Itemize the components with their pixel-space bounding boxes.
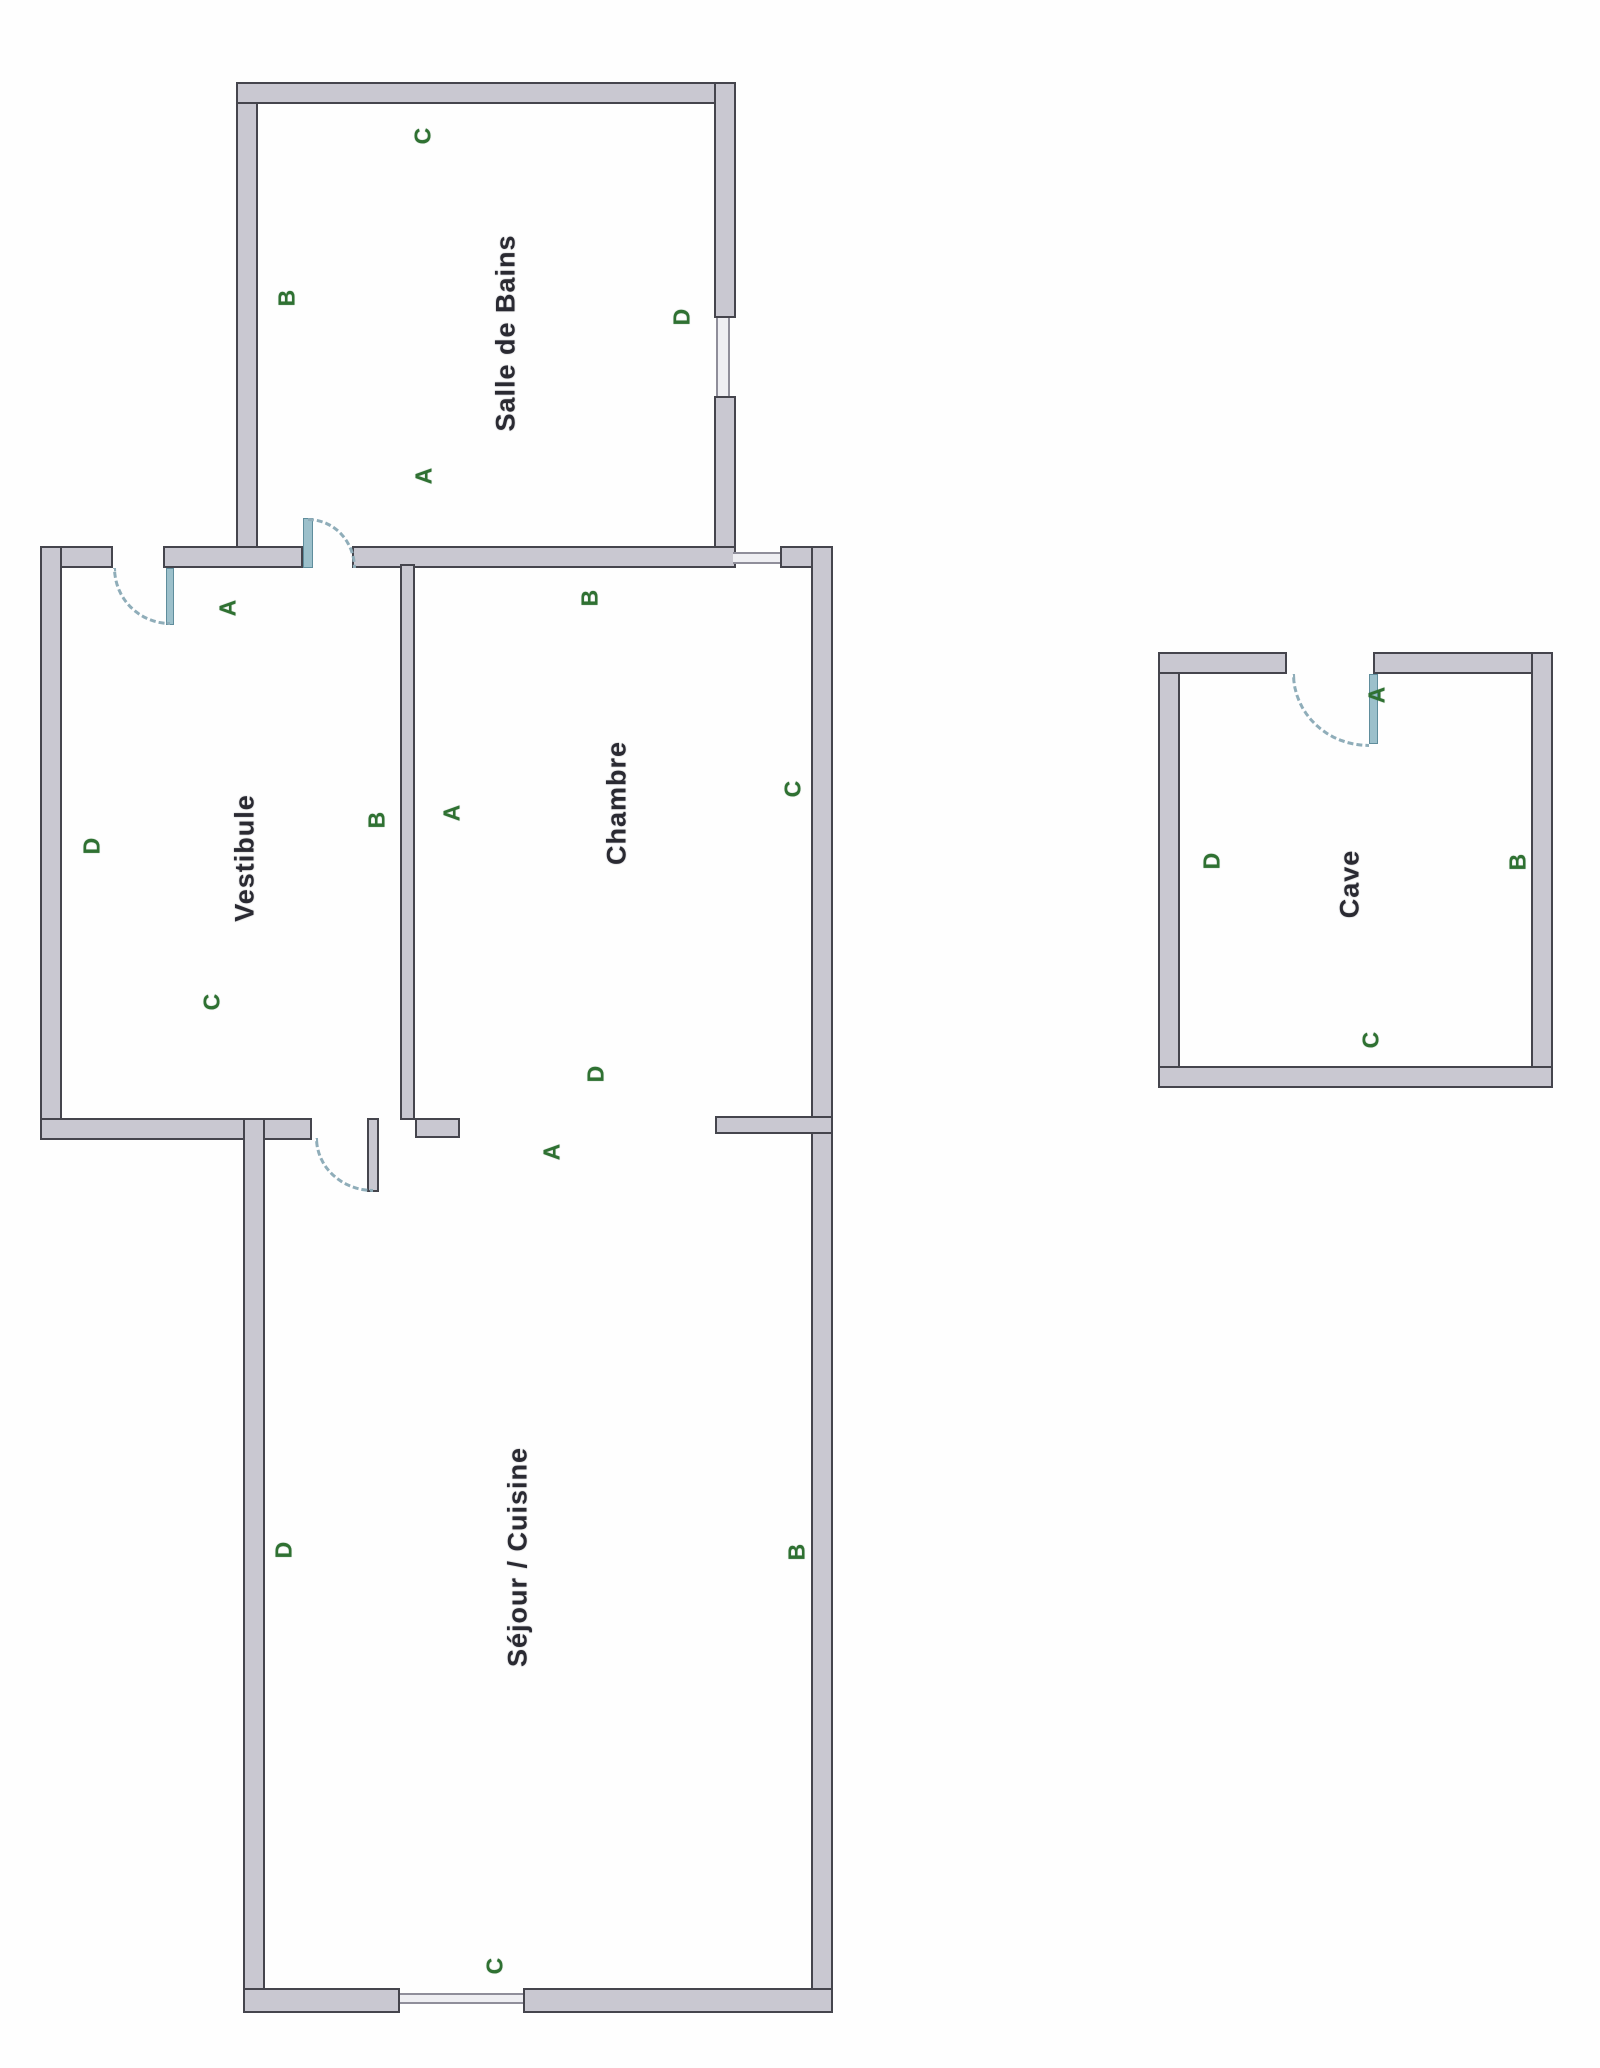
- chambre-wall-label-d: D: [583, 1066, 610, 1083]
- cave-wall-label-a: A: [1364, 687, 1391, 704]
- cave-door-leaf: [1369, 674, 1378, 744]
- sejour-left-wall: [243, 1118, 265, 2013]
- cave-door-swing-arc: [1292, 674, 1369, 747]
- room-name-sejour-cuisine: Séjour / Cuisine: [503, 1447, 534, 1667]
- salle-de-bains-wall-label-d: D: [669, 309, 696, 326]
- cave-right-wall: [1531, 652, 1553, 1088]
- room-name-chambre: Chambre: [602, 741, 633, 865]
- sejour-wall-label-d: D: [271, 1542, 298, 1559]
- sejour-wall-label-a: A: [539, 1144, 566, 1161]
- vestibule-wall-label-a: A: [215, 600, 242, 617]
- chambre-sejour-right-wall: [811, 546, 833, 2013]
- vestibule-wall-label-b: B: [364, 812, 391, 829]
- salle-de-bains-top-wall: [236, 82, 736, 104]
- salle-de-bains-wall-label-c: C: [410, 128, 437, 145]
- sejour-top-wall-stub: [415, 1118, 460, 1138]
- cave-wall-label-b: B: [1505, 854, 1532, 871]
- room-name-cave: Cave: [1335, 850, 1366, 919]
- chambre-wall-label-c: C: [780, 781, 807, 798]
- chambre-top-window: [733, 552, 780, 564]
- vestibule-chambre-divider-wall: [400, 564, 415, 1120]
- sejour-bottom-window: [400, 1993, 523, 2004]
- cave-top-wall-right: [1373, 652, 1553, 674]
- floor-plan: Salle de Bains Vestibule Chambre Séjour …: [0, 0, 1600, 2068]
- vestibule-top-wall-right: [163, 546, 303, 568]
- chambre-wall-label-a: A: [439, 805, 466, 822]
- salle-de-bains-right-wall-lower: [714, 396, 736, 568]
- sejour-wall-label-b: B: [784, 1544, 811, 1561]
- chambre-bottom-wall: [715, 1116, 833, 1134]
- sejour-bottom-wall-left: [243, 1988, 400, 2013]
- cave-left-wall: [1158, 652, 1180, 1088]
- cave-top-wall-left: [1158, 652, 1287, 674]
- vestibule-wall-label-d: D: [79, 838, 106, 855]
- sejour-bottom-wall-right: [523, 1988, 833, 2013]
- cave-wall-label-c: C: [1358, 1032, 1385, 1049]
- chambre-wall-label-b: B: [577, 590, 604, 607]
- salle-de-bains-right-wall-upper: [714, 82, 736, 318]
- salle-de-bains-wall-label-a: A: [411, 468, 438, 485]
- salle-de-bains-left-wall: [236, 82, 258, 568]
- sejour-door-swing-arc: [315, 1138, 373, 1192]
- room-name-salle-de-bains: Salle de Bains: [491, 234, 522, 431]
- cave-bottom-wall: [1158, 1066, 1553, 1088]
- vestibule-wall-label-c: C: [199, 994, 226, 1011]
- vestibule-left-wall: [40, 546, 62, 1140]
- room-name-vestibule: Vestibule: [230, 794, 261, 922]
- sejour-wall-label-c: C: [482, 1958, 509, 1975]
- vestibule-bottom-wall: [40, 1118, 312, 1140]
- cave-wall-label-d: D: [1199, 853, 1226, 870]
- entry-door-swing-arc: [113, 568, 170, 625]
- salle-de-bains-wall-label-b: B: [274, 290, 301, 307]
- salle-de-bains-window: [716, 318, 730, 396]
- bathroom-door-swing-arc: [308, 518, 356, 568]
